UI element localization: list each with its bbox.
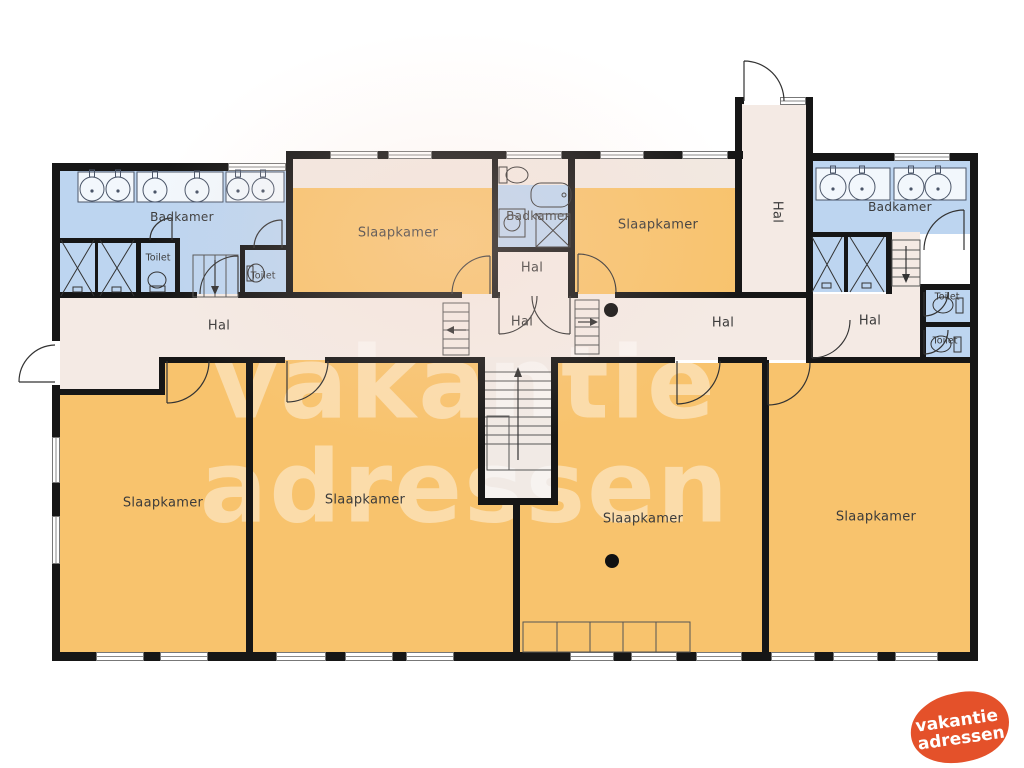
stair-arrowheads <box>211 274 910 377</box>
room-label-hal-right: Hal <box>859 314 881 329</box>
door-arcs <box>19 61 964 405</box>
stair-arrows <box>215 246 906 460</box>
room-label-slaapkamer-top-right: Slaapkamer <box>618 218 698 233</box>
room-label-hal-center: Hal <box>511 315 533 330</box>
room-label-slaapkamer-bottom-3: Slaapkamer <box>603 512 683 527</box>
room-label-badkamer-right: Badkamer <box>868 200 932 214</box>
brand-logo: vakantie adressen <box>898 688 1016 768</box>
room-label-slaapkamer-bottom-4: Slaapkamer <box>836 510 916 525</box>
room-label-toilet-right-2: Toilet <box>933 336 958 347</box>
fixtures-layer <box>0 0 1024 768</box>
stairs <box>193 240 920 470</box>
room-label-slaapkamer-top-left: Slaapkamer <box>358 226 438 241</box>
room-label-hal-left: Hal <box>208 319 230 334</box>
bath-icon <box>531 183 571 207</box>
room-label-badkamer-center: Badkamer <box>506 209 570 223</box>
floorplan-canvas: vakantie adressen <box>0 0 1024 768</box>
room-label-toilet-left-1: Toilet <box>146 253 171 264</box>
closet-row <box>523 622 690 652</box>
room-label-toilet-left-2: Toilet <box>251 271 276 282</box>
room-label-slaapkamer-bottom-1: Slaapkamer <box>123 496 203 511</box>
room-label-hal-center-small: Hal <box>521 261 543 276</box>
room-label-toilet-right-1: Toilet <box>935 292 960 303</box>
column-dots <box>604 303 619 568</box>
shower-icons <box>61 237 884 296</box>
room-label-hal-vertical: Hal <box>770 201 785 223</box>
room-label-slaapkamer-bottom-2: Slaapkamer <box>325 493 405 508</box>
room-label-hal-right-mid: Hal <box>712 316 734 331</box>
room-label-badkamer-left: Badkamer <box>150 210 214 224</box>
